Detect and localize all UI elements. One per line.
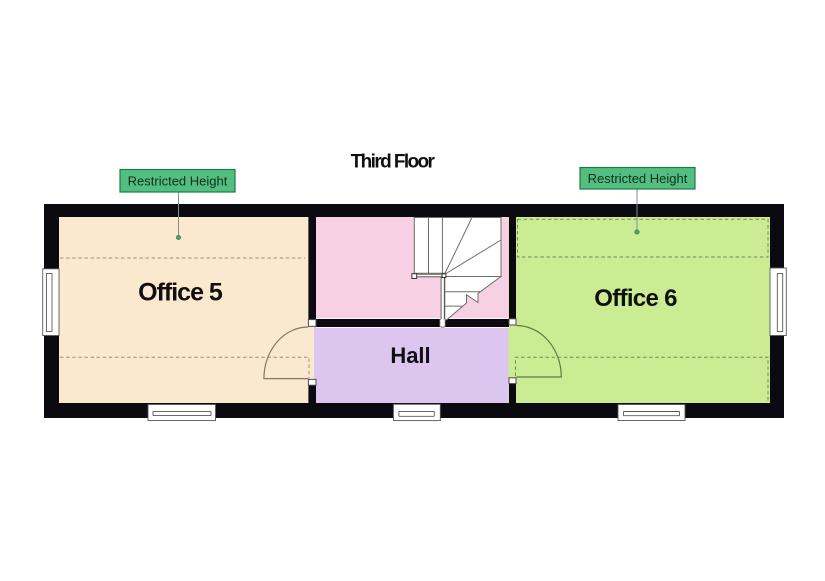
svg-text:Office 5: Office 5	[138, 279, 223, 307]
svg-text:Office 6: Office 6	[594, 285, 677, 312]
svg-text:Restricted Height: Restricted Height	[588, 171, 688, 186]
svg-text:Hall: Hall	[390, 343, 430, 368]
svg-text:Restricted Height: Restricted Height	[128, 174, 228, 189]
svg-text:Third Floor: Third Floor	[351, 152, 436, 173]
